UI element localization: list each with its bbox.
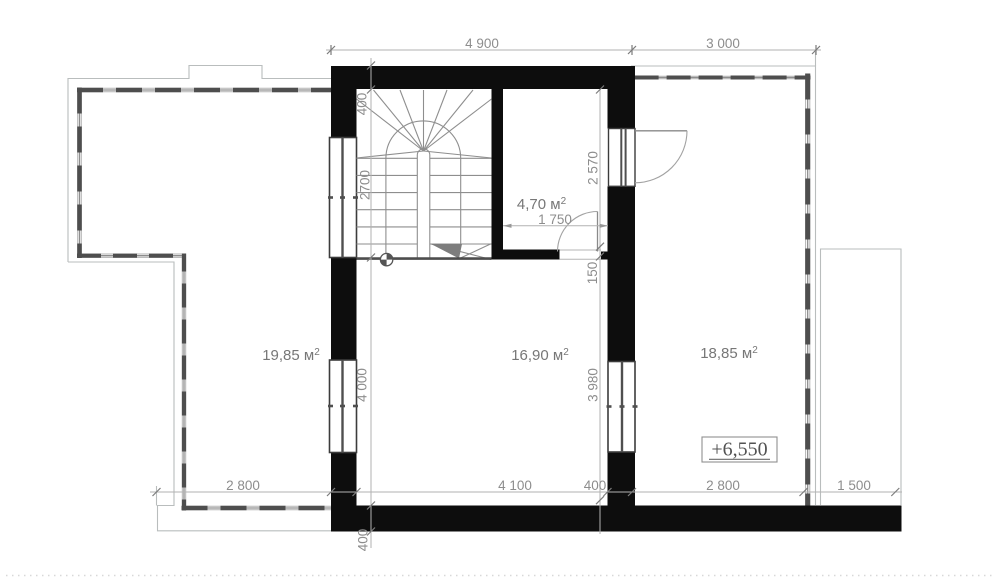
svg-text:4 100: 4 100 <box>498 478 532 493</box>
svg-text:18,85 м2: 18,85 м2 <box>700 345 758 362</box>
svg-text:2700: 2700 <box>358 170 373 200</box>
svg-text:400: 400 <box>356 529 371 552</box>
svg-text:150: 150 <box>585 262 600 285</box>
svg-text:2 800: 2 800 <box>226 478 260 493</box>
svg-text:1 750: 1 750 <box>538 212 572 227</box>
svg-text:3 000: 3 000 <box>706 36 740 51</box>
svg-text:19,85 м2: 19,85 м2 <box>262 347 320 364</box>
svg-text:2 800: 2 800 <box>706 478 740 493</box>
svg-text:4 000: 4 000 <box>355 368 370 402</box>
svg-text:2 570: 2 570 <box>586 151 601 185</box>
svg-text:1 500: 1 500 <box>837 478 871 493</box>
svg-text:400: 400 <box>584 478 607 493</box>
svg-text:4,70 м2: 4,70 м2 <box>517 196 567 213</box>
svg-text:4 900: 4 900 <box>465 36 499 51</box>
svg-text:3 980: 3 980 <box>586 368 601 402</box>
svg-text:+6,550: +6,550 <box>711 439 767 461</box>
svg-text:16,90 м2: 16,90 м2 <box>511 347 569 364</box>
svg-text:400: 400 <box>355 93 370 116</box>
